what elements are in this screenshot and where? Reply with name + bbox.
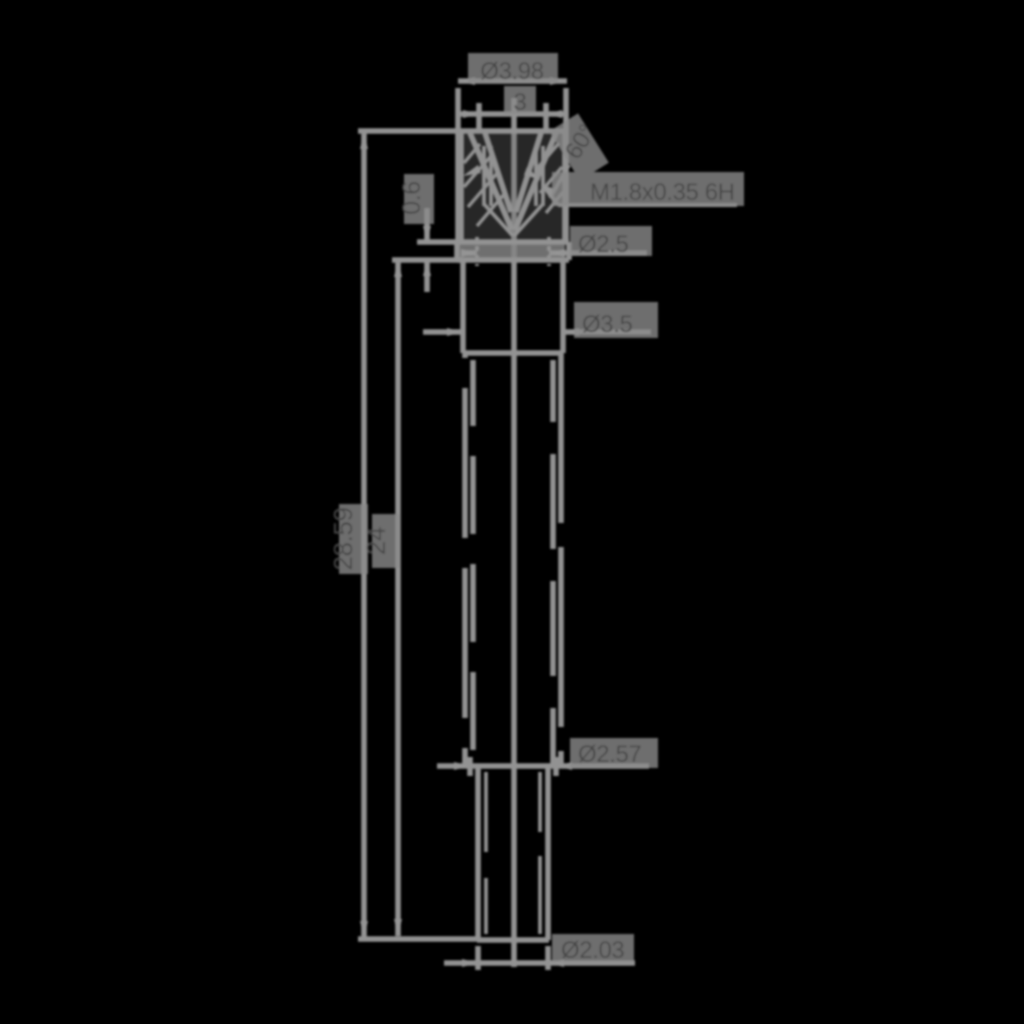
- svg-text:Ø2.5: Ø2.5: [578, 231, 628, 258]
- svg-text:Ø3.5: Ø3.5: [582, 311, 632, 338]
- svg-text:Ø2.57: Ø2.57: [578, 741, 641, 768]
- svg-text:0.6: 0.6: [398, 181, 426, 215]
- svg-text:3: 3: [514, 89, 527, 116]
- svg-text:Ø2.03: Ø2.03: [561, 937, 624, 964]
- svg-text:Ø3.98: Ø3.98: [480, 58, 543, 85]
- svg-text:28.59: 28.59: [328, 507, 358, 570]
- svg-text:24: 24: [361, 527, 391, 555]
- svg-text:M1.8x0.35 6H: M1.8x0.35 6H: [590, 179, 735, 206]
